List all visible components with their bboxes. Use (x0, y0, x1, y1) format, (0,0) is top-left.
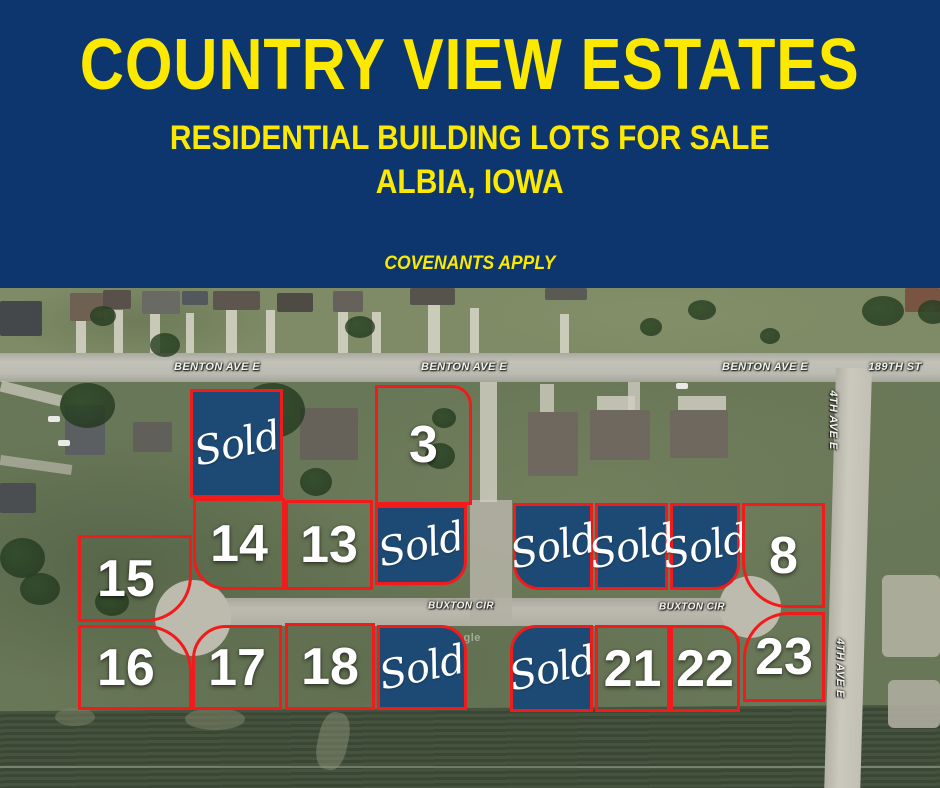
house-icon (333, 291, 363, 312)
house-icon (182, 291, 208, 305)
driveway-icon (266, 310, 275, 353)
lot-sold-b: Sold (375, 505, 467, 585)
driveway-icon (372, 312, 381, 353)
street-label-benton-3: BENTON AVE E (722, 361, 808, 373)
tree-icon (0, 538, 45, 578)
lot-14: 14 (193, 498, 285, 590)
lot-sold-d: Sold (513, 503, 593, 590)
crop-field (0, 705, 940, 788)
driveway-icon (428, 300, 440, 353)
lot-number: 13 (300, 519, 358, 571)
house-icon (142, 291, 180, 314)
header-banner: COUNTRY VIEW ESTATES RESIDENTIAL BUILDIN… (0, 0, 940, 288)
street-label-buxton-2: BUXTON CIR (659, 602, 725, 613)
sold-label: Sold (190, 412, 284, 475)
sold-label: Sold (505, 637, 599, 700)
lot-23: 23 (743, 612, 825, 702)
tree-icon (150, 333, 180, 357)
dirt-patch (55, 708, 95, 726)
lot-17: 17 (192, 625, 282, 710)
lot-8: 8 (742, 503, 825, 608)
sold-label: Sold (658, 515, 752, 578)
driveway-icon (560, 314, 569, 353)
house-icon (590, 410, 650, 460)
tree-icon (760, 328, 780, 344)
street-label-4th-ave-1: 4TH AVE E (827, 390, 839, 449)
house-icon (300, 408, 358, 460)
lot-number: 15 (97, 553, 155, 605)
tree-icon (90, 306, 116, 326)
driveway-icon (0, 455, 72, 475)
lot-number: 18 (301, 641, 359, 693)
page-title: COUNTRY VIEW ESTATES (0, 24, 940, 106)
lot-number: 21 (604, 643, 662, 695)
lot-number: 22 (676, 643, 734, 695)
house-icon (0, 483, 36, 513)
tree-icon (640, 318, 662, 336)
house-icon (528, 412, 578, 476)
house-icon (0, 301, 42, 336)
house-icon (277, 293, 313, 312)
lot-number: 17 (208, 642, 266, 694)
gravel-pad (888, 680, 940, 728)
tree-icon (688, 300, 716, 320)
lot-13: 13 (285, 500, 373, 590)
tree-icon (862, 296, 904, 326)
tree-icon (20, 573, 60, 605)
tree-icon (918, 300, 940, 324)
driveway-strip (480, 382, 497, 502)
lot-number: 8 (769, 530, 798, 582)
subtitle: RESIDENTIAL BUILDING LOTS FOR SALE (0, 119, 940, 158)
lot-3: 3 (375, 385, 472, 505)
lot-number: 16 (97, 642, 155, 694)
lot-15: 15 (78, 535, 192, 622)
driveway-icon (226, 306, 237, 353)
street-label-189th: 189TH ST (868, 361, 921, 373)
house-icon (670, 410, 728, 458)
lot-number: 14 (210, 518, 268, 570)
lot-sold-c: Sold (377, 625, 467, 710)
car-icon (58, 440, 70, 446)
house-icon (133, 422, 172, 452)
lot-sold-e: Sold (595, 503, 668, 590)
sold-label: Sold (375, 636, 469, 699)
driveway-icon (470, 308, 479, 353)
tree-icon (345, 316, 375, 338)
lot-22: 22 (670, 625, 740, 712)
tree-icon (300, 468, 332, 496)
car-icon (676, 383, 688, 389)
sold-label: Sold (506, 515, 600, 578)
street-label-buxton-1: BUXTON CIR (428, 601, 494, 612)
lot-21: 21 (595, 625, 670, 712)
dirt-patch (185, 708, 245, 730)
lot-number: 23 (755, 631, 813, 683)
house-icon (545, 288, 587, 300)
location-text: ALBIA, IOWA (0, 163, 940, 202)
lot-sold-f: Sold (670, 503, 740, 590)
flyer-page: COUNTRY VIEW ESTATES RESIDENTIAL BUILDIN… (0, 0, 940, 788)
lot-16: 16 (78, 625, 192, 710)
house-icon (213, 291, 260, 310)
street-label-4th-ave-2: 4TH AVE E (834, 638, 846, 697)
sold-label: Sold (374, 514, 468, 577)
street-label-benton-2: BENTON AVE E (421, 361, 507, 373)
house-icon (410, 288, 455, 305)
lot-18: 18 (285, 623, 375, 710)
lot-sold-g: Sold (510, 625, 593, 712)
aerial-map: Google Sold 3 14 13 Sold 15 16 17 18 Sol… (0, 288, 940, 788)
field-track-line (0, 766, 940, 768)
car-icon (48, 416, 60, 422)
gravel-pad (882, 575, 940, 657)
driveway-icon (186, 313, 194, 353)
lot-sold-a: Sold (190, 389, 283, 498)
driveway-icon (0, 381, 62, 407)
street-label-benton-1: BENTON AVE E (174, 361, 260, 373)
covenants-note: COVENANTS APPLY (0, 253, 940, 275)
lot-number: 3 (409, 419, 438, 471)
tree-icon (60, 383, 115, 428)
